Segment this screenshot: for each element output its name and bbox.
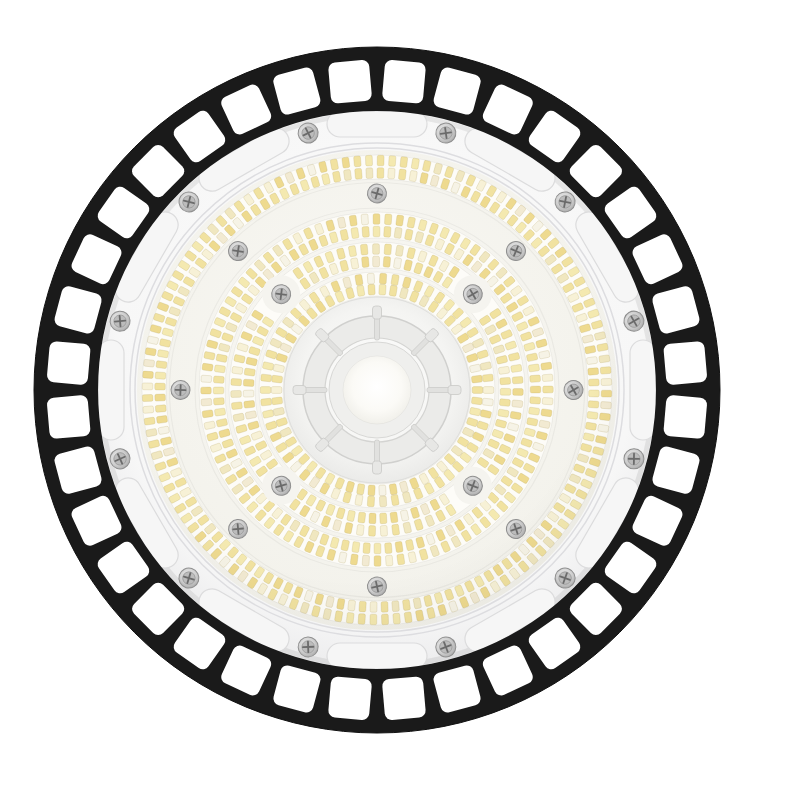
bezel-recess — [630, 340, 656, 440]
cage-window — [382, 59, 426, 103]
cage-window — [328, 676, 372, 720]
led-highbay-fixture — [0, 0, 800, 800]
bezel-screw — [298, 637, 319, 658]
cage-window — [46, 341, 90, 385]
bezel-screw — [624, 449, 644, 469]
panel-shading — [137, 150, 617, 630]
cage-window — [46, 395, 90, 439]
bezel-recess — [98, 340, 124, 440]
product-photo — [0, 0, 800, 800]
cage-window — [382, 676, 426, 720]
cage-window — [663, 395, 707, 439]
generated-scene — [34, 47, 720, 733]
phillips-slot-icon — [120, 316, 121, 326]
cage-window — [328, 59, 372, 103]
bezel-recess — [327, 111, 427, 137]
bezel-recess — [327, 643, 427, 669]
cage-window — [663, 341, 707, 385]
